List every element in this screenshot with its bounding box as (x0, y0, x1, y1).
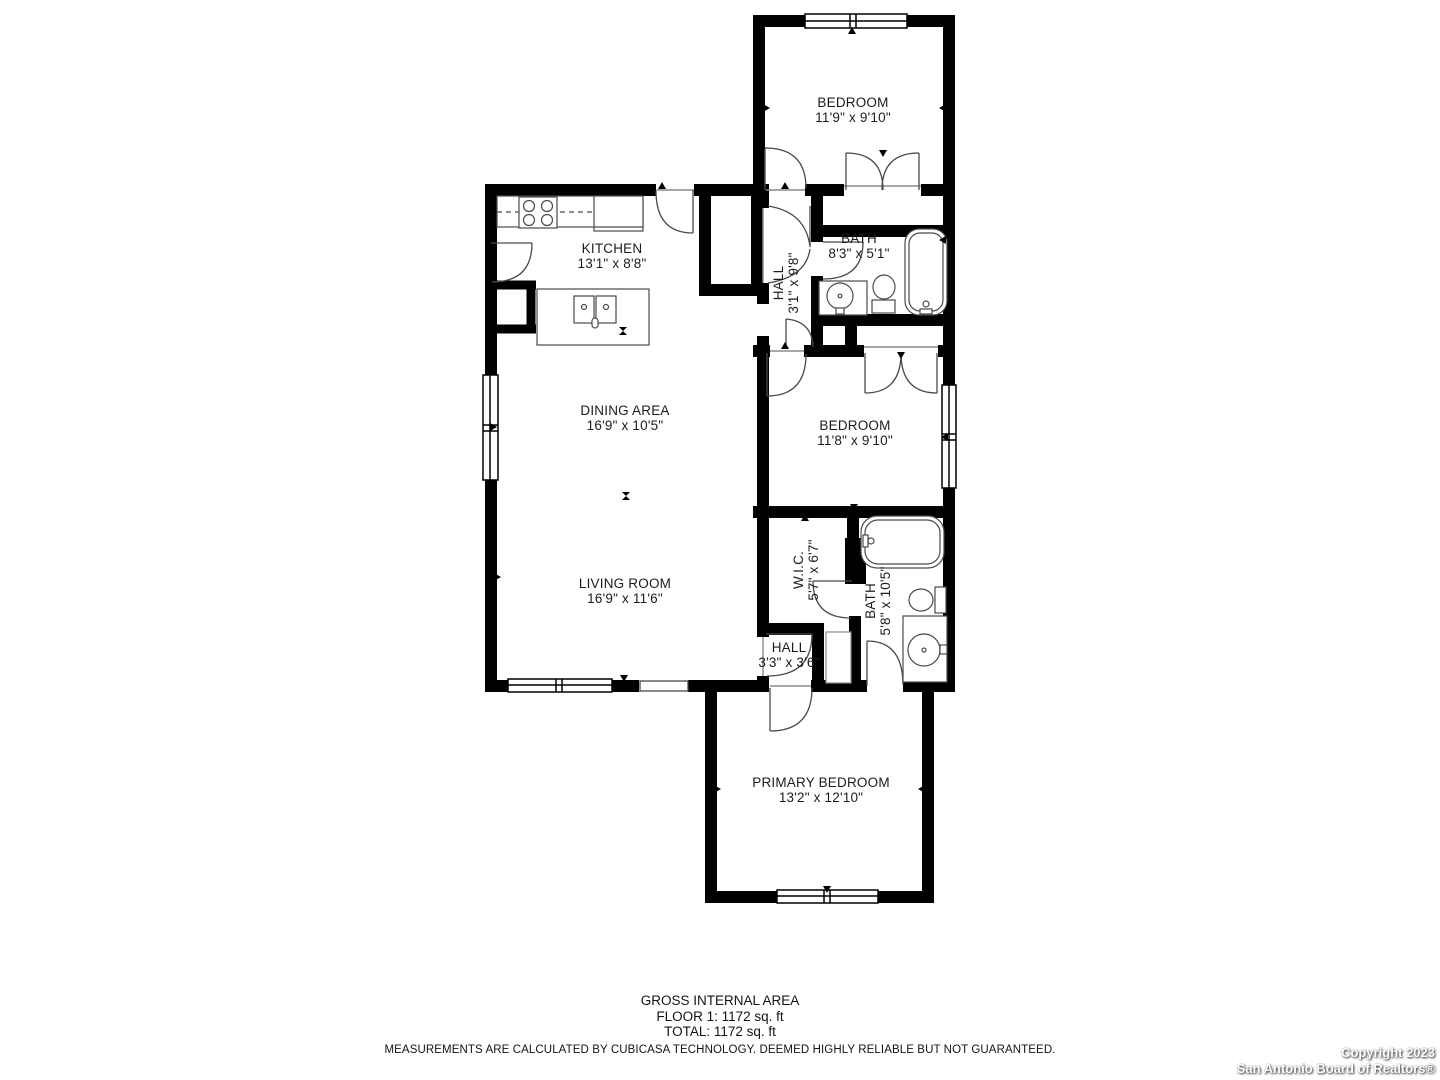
room-label-primary-bedroom: PRIMARY BEDROOM 13'2" x 12'10" (752, 775, 890, 805)
walls (485, 15, 955, 903)
door-arc (846, 153, 883, 190)
bathtub-icon (861, 516, 944, 568)
room-name: W.I.C. (791, 539, 806, 600)
door-arc (786, 319, 813, 347)
kitchen-cabinet (594, 196, 643, 231)
linen-closet (826, 632, 851, 683)
window (508, 679, 612, 692)
sink-icon (903, 616, 947, 682)
room-label-kitchen: KITCHEN 13'1" x 8'8" (578, 241, 647, 271)
room-label-hall-bottom: HALL 3'3" x 3'6" (758, 640, 819, 670)
door-arc (770, 688, 812, 731)
room-dims: 5'7" x 6'7" (806, 539, 821, 600)
room-label-dining: DINING AREA 16'9" x 10'5" (580, 403, 669, 433)
room-label-wic: W.I.C. 5'7" x 6'7" (791, 539, 821, 600)
room-name: BEDROOM (817, 418, 893, 433)
door-arc (901, 353, 937, 393)
sink-icon (819, 281, 867, 315)
copyright-watermark: Copyright 2023 San Antonio Board of Real… (1237, 1045, 1435, 1077)
room-label-hall-top: HALL 3'1" x 9'8" (771, 252, 801, 313)
bathtub-icon (905, 229, 947, 315)
room-name: PRIMARY BEDROOM (752, 775, 890, 790)
room-dims: 13'1" x 8'8" (578, 256, 647, 271)
summary-floor-line: FLOOR 1: 1172 sq. ft (0, 1009, 1440, 1025)
windows (483, 14, 956, 903)
door-arc (768, 206, 810, 247)
room-name: LIVING ROOM (579, 576, 671, 591)
room-dims: 16'9" x 11'6" (579, 591, 671, 606)
door-arc (882, 153, 919, 190)
door-arc (867, 641, 903, 686)
realtor-board-line: San Antonio Board of Realtors® (1237, 1061, 1435, 1077)
room-dims: 11'8" x 9'10" (817, 433, 893, 448)
area-summary: GROSS INTERNAL AREA FLOOR 1: 1172 sq. ft… (0, 993, 1440, 1058)
room-dims: 3'1" x 9'8" (786, 252, 801, 313)
toilet-icon (909, 587, 946, 613)
room-label-bedroom-top: BEDROOM 11'9" x 9'10" (815, 95, 891, 125)
door-arc (491, 243, 532, 282)
window (805, 14, 907, 28)
copyright-line: Copyright 2023 (1237, 1045, 1435, 1061)
stove-icon (519, 197, 557, 228)
summary-disclaimer: MEASUREMENTS ARE CALCULATED BY CUBICASA … (0, 1043, 1440, 1059)
room-label-bedroom-middle: BEDROOM 11'8" x 9'10" (817, 418, 893, 448)
door-arc (865, 353, 901, 393)
floor-plan-page: BEDROOM 11'9" x 9'10" KITCHEN 13'1" x 8'… (0, 0, 1440, 1080)
room-name: BEDROOM (815, 95, 891, 110)
summary-title: GROSS INTERNAL AREA (0, 993, 1440, 1009)
room-label-bath-top: BATH 8'3" x 5'1" (828, 231, 889, 261)
room-dims: 3'3" x 3'6" (758, 655, 819, 670)
room-dims: 13'2" x 12'10" (752, 790, 890, 805)
floor-plan-drawing (0, 0, 1440, 1080)
room-dims: 16'9" x 10'5" (580, 418, 669, 433)
room-name: BATH (828, 231, 889, 246)
summary-total-line: TOTAL: 1172 sq. ft (0, 1024, 1440, 1040)
room-name: KITCHEN (578, 241, 647, 256)
toilet-icon (872, 275, 895, 313)
room-name: HALL (758, 640, 819, 655)
entry-door-slab (640, 681, 688, 691)
room-name: HALL (771, 252, 786, 313)
room-name: BATH (863, 567, 878, 636)
room-dims: 8'3" x 5'1" (828, 246, 889, 261)
plan-markers (490, 27, 948, 893)
room-label-bath-bottom: BATH 5'8" x 10'5" (863, 567, 893, 636)
room-dims: 11'9" x 9'10" (815, 110, 891, 125)
room-label-living: LIVING ROOM 16'9" x 11'6" (579, 576, 671, 606)
door-arc (767, 353, 806, 396)
room-dims: 5'8" x 10'5" (878, 567, 893, 636)
door-arc (656, 190, 693, 233)
room-name: DINING AREA (580, 403, 669, 418)
